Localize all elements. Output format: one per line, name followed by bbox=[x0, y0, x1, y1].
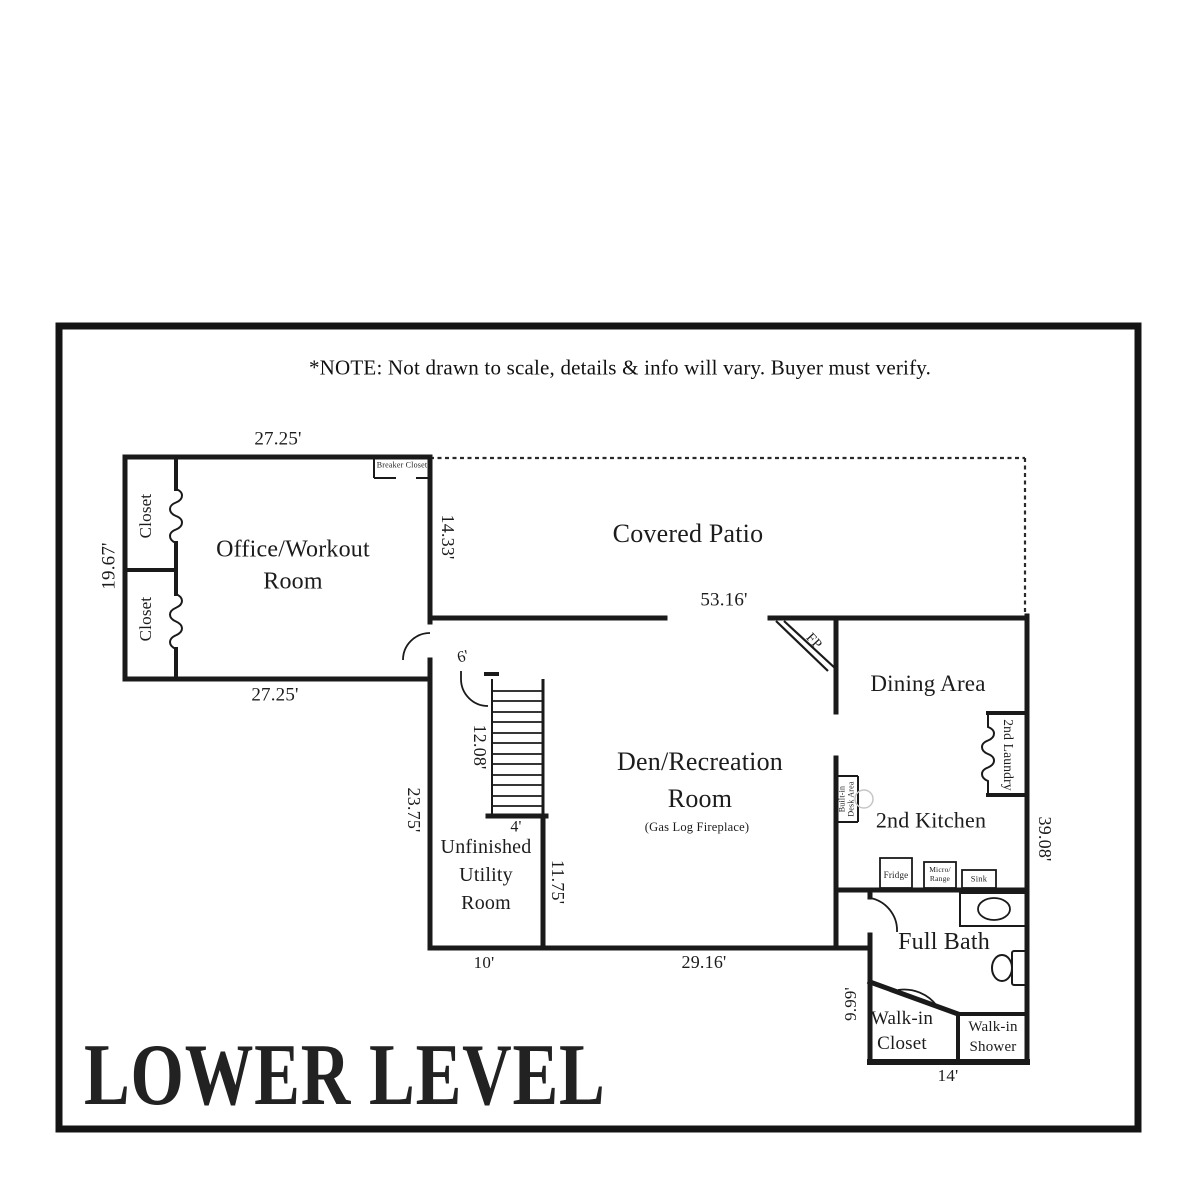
dim-patio-width: 53.16' bbox=[700, 587, 747, 612]
room-label-utility: Unfinished Utility Room bbox=[441, 833, 532, 917]
plan-title: LOWER LEVEL bbox=[84, 1032, 606, 1120]
room-label-2nd-laundry: 2nd Laundry bbox=[999, 719, 1017, 791]
closet-lower-door-squiggle-icon bbox=[170, 594, 182, 649]
room-label-walkin-shower: Walk-in Shower bbox=[968, 1018, 1017, 1058]
room-label-dining: Dining Area bbox=[870, 669, 985, 699]
label-built-in-desk: Built-in Desk Area bbox=[838, 781, 857, 816]
closet-upper-door-squiggle-icon bbox=[170, 489, 182, 543]
label-closet-lower: Closet bbox=[135, 597, 157, 642]
stair-hall-door-arc-icon bbox=[461, 671, 488, 706]
bath-door-arc-icon bbox=[870, 898, 897, 932]
dim-office-left: 19.67' bbox=[96, 542, 121, 589]
room-label-full-bath: Full Bath bbox=[898, 927, 990, 959]
office-door-arc-icon bbox=[403, 633, 430, 660]
label-sink: Sink bbox=[971, 873, 987, 884]
dim-utility-bottom: 10' bbox=[474, 952, 495, 974]
dim-bath-closet-left: 9.99' bbox=[840, 987, 862, 1021]
dim-east-side: 39.08' bbox=[1032, 817, 1056, 862]
room-sublabel-den-fireplace: (Gas Log Fireplace) bbox=[645, 819, 749, 836]
vanity-basin-icon bbox=[978, 898, 1010, 920]
room-label-den: Den/Recreation Room bbox=[617, 744, 783, 818]
dim-office-bottom: 27.25' bbox=[251, 682, 298, 707]
plan-border bbox=[59, 326, 1138, 1129]
stairs-icon bbox=[492, 679, 543, 816]
dim-utility-right: 11.75' bbox=[545, 860, 569, 904]
dim-utility-left: 23.75' bbox=[401, 788, 425, 833]
room-label-2nd-kitchen: 2nd Kitchen bbox=[876, 805, 986, 834]
label-fridge: Fridge bbox=[884, 870, 909, 882]
closet-partition bbox=[125, 457, 176, 679]
room-label-walkin-closet: Walk-in Closet bbox=[871, 1006, 933, 1056]
room-label-office: Office/Workout Room bbox=[216, 534, 370, 597]
dim-stairs-width: 4' bbox=[510, 816, 521, 837]
dim-den-bottom: 29.16' bbox=[682, 951, 727, 975]
label-closet-upper: Closet bbox=[135, 494, 157, 539]
label-breaker-closet: Breaker Closet bbox=[377, 461, 428, 472]
laundry-door-squiggle-icon bbox=[982, 713, 994, 795]
disclaimer-note: *NOTE: Not drawn to scale, details & inf… bbox=[309, 356, 931, 381]
dim-bath-closet-bottom: 14' bbox=[938, 1065, 959, 1087]
room-label-covered-patio: Covered Patio bbox=[613, 517, 764, 551]
dim-office-right: 14.33' bbox=[435, 515, 459, 560]
dim-stairs-length: 12.08' bbox=[467, 725, 491, 770]
floor-plan-drawing bbox=[0, 0, 1200, 1202]
label-micro-range: Micro/ Range bbox=[929, 866, 951, 884]
floor-plan-page: *NOTE: Not drawn to scale, details & inf… bbox=[0, 0, 1200, 1202]
dim-office-top: 27.25' bbox=[254, 426, 301, 451]
toilet-bowl-icon bbox=[992, 955, 1012, 981]
